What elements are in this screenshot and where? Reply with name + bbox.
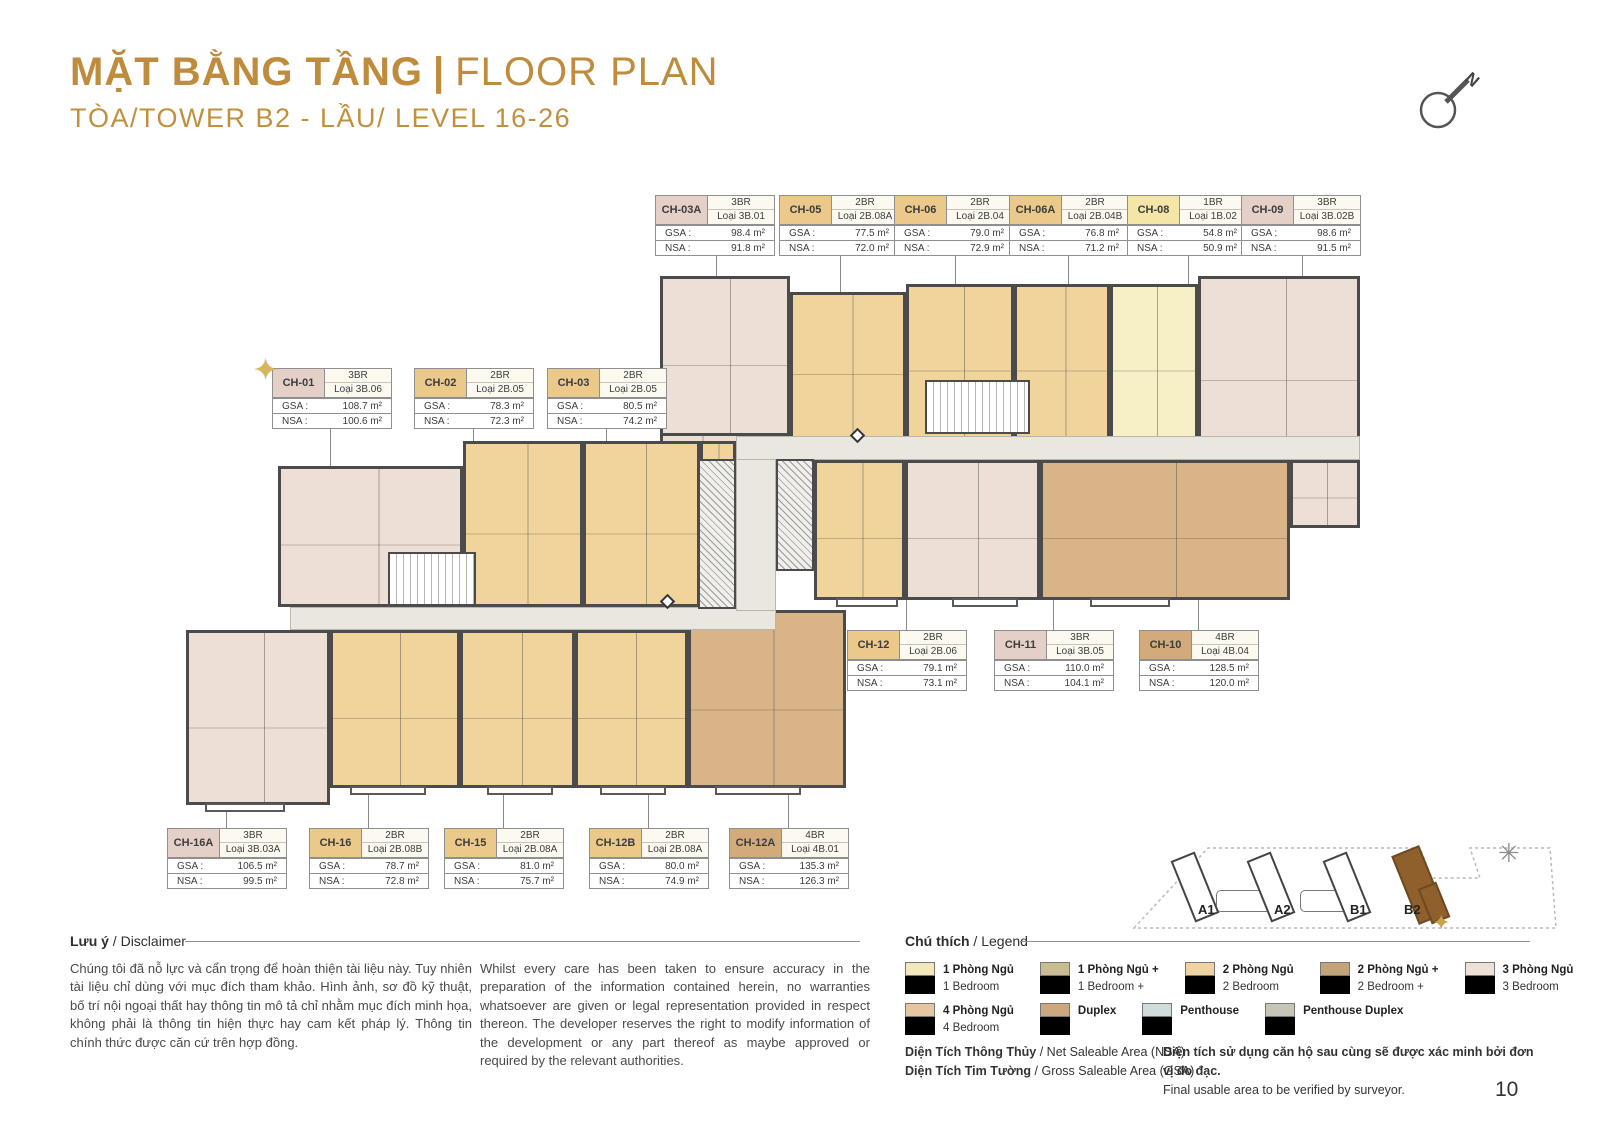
unit-type-cell: 4BRLoại 4B.04 [1192,631,1258,659]
unit-gsa-row: GSA :77.5 m² [780,225,898,240]
tower-level-subtitle: TÒA/TOWER B2 - LẦU/ LEVEL 16-26 [70,103,571,134]
gsa-label: GSA : [1251,228,1277,239]
unit-bedroom-type: 2BR [642,829,708,843]
balcony [600,786,666,795]
unit-info-box-ch-03a: CH-03A3BRLoại 3B.01GSA :98.4 m²NSA :91.8… [655,195,775,256]
corridor-vertical-link [736,459,776,611]
unit-bedroom-type: 3BR [708,196,774,210]
legend-labels: Duplex [1078,1003,1116,1036]
unit-box-top: CH-152BRLoại 2B.08A [445,829,563,858]
nsa-label: NSA : [1004,678,1030,689]
unit-box-top: CH-162BRLoại 2B.08B [310,829,428,858]
unit-id: CH-12B [590,829,642,857]
unit-info-box-ch-01: ✦CH-013BRLoại 3B.06GSA :108.7 m²NSA :100… [272,368,392,429]
unit-bedroom-type: 2BR [1062,196,1128,210]
unit-bedroom-type: 2BR [362,829,428,843]
unit-nsa-row: NSA :50.9 m² [1128,240,1246,255]
plan-unit-ch-09-tail [1290,460,1360,528]
nsa-value: 72.0 m² [855,243,889,254]
gsa-label: GSA : [789,228,815,239]
unit-box-top: CH-113BRLoại 3B.05 [995,631,1113,660]
leader-line [906,600,907,630]
unit-type-cell: 3BRLoại 3B.02B [1294,196,1360,224]
unit-box-top: CH-06A2BRLoại 2B.04B [1010,196,1128,225]
gsa-value: 76.8 m² [1085,228,1119,239]
unit-id: CH-16 [310,829,362,857]
unit-gsa-row: GSA :54.8 m² [1128,225,1246,240]
legend-label-en [1180,1020,1239,1037]
unit-bedroom-type: 2BR [900,631,966,645]
nsa-label: NSA : [599,876,625,887]
nsa-label: NSA : [1137,243,1163,254]
disclaimer-text-en: Whilst every care has been taken to ensu… [480,960,870,1071]
unit-gsa-row: GSA :78.3 m² [415,398,533,413]
unit-type-cell: 3BRLoại 3B.06 [325,369,391,397]
nsa-value: 50.9 m² [1203,243,1237,254]
legend-labels: Penthouse Duplex [1303,1003,1403,1036]
leader-line [1068,253,1069,284]
plan-unit-ch-03a [660,276,790,436]
legend-heading-vi: Chú thích [905,933,970,949]
unit-nsa-row: NSA :104.1 m² [995,675,1113,690]
gsa-value: 79.0 m² [970,228,1004,239]
nsa-value: 100.6 m² [343,416,382,427]
stair-core-left [388,552,476,606]
balcony [487,786,553,795]
legend-labels: 3 Phòng Ngủ3 Bedroom [1503,962,1574,995]
elevator-bank-left [698,459,736,609]
unit-gsa-row: GSA :79.0 m² [895,225,1013,240]
nsa-value: 72.8 m² [385,876,419,887]
unit-gsa-row: GSA :98.6 m² [1242,225,1360,240]
balcony [350,786,426,795]
nsa-value: 72.9 m² [970,243,1004,254]
unit-nsa-row: NSA :72.0 m² [780,240,898,255]
leader-line [1188,253,1189,284]
nsa-label: NSA : [739,876,765,887]
unit-info-box-ch-08: CH-081BRLoại 1B.02GSA :54.8 m²NSA :50.9 … [1127,195,1247,256]
nsa-value: 104.1 m² [1065,678,1104,689]
gsa-value: 98.4 m² [731,228,765,239]
unit-gsa-row: GSA :78.7 m² [310,858,428,873]
plan-unit-ch-09 [1198,276,1360,462]
legend-item: 2 Phòng Ngủ2 Bedroom [1185,962,1294,995]
unit-id: CH-06A [1010,196,1062,224]
unit-info-box-ch-16: CH-162BRLoại 2B.08BGSA :78.7 m²NSA :72.8… [309,828,429,889]
page-title-vi: MẶT BẰNG TẦNG [70,50,423,94]
gsa-label: GSA : [599,861,625,872]
unit-gsa-row: GSA :110.0 m² [995,660,1113,675]
unit-info-box-ch-12: CH-122BRLoại 2B.06GSA :79.1 m²NSA :73.1 … [847,630,967,691]
leader-line [1302,253,1303,276]
plan-unit-ch-16a [186,630,330,805]
legend-labels: 1 Phòng Ngủ +1 Bedroom + [1078,962,1159,995]
unit-type-cell: 3BRLoại 3B.03A [220,829,286,857]
balcony [715,786,801,795]
unit-layout-code: Loại 2B.08A [832,210,898,224]
plan-unit-ch-12a [688,610,846,788]
nsa-label: NSA : [904,243,930,254]
unit-id: CH-02 [415,369,467,397]
legend-labels: 2 Phòng Ngủ2 Bedroom [1223,962,1294,995]
tower-label-a1: A1 [1198,902,1215,917]
unit-nsa-row: NSA :72.8 m² [310,873,428,888]
legend-item: 2 Phòng Ngủ +2 Bedroom + [1320,962,1439,995]
nsa-label: NSA : [1019,243,1045,254]
legend-row-2: 4 Phòng Ngủ4 BedroomDuplex Penthouse Pen… [905,1003,1403,1036]
unit-nsa-row: NSA :71.2 m² [1010,240,1128,255]
unit-id: CH-16A [168,829,220,857]
unit-gsa-row: GSA :80.0 m² [590,858,708,873]
disclaimer-heading-vi: Lưu ý [70,933,109,949]
balcony [205,803,285,812]
legend-labels: 4 Phòng Ngủ4 Bedroom [943,1003,1014,1036]
unit-info-box-ch-15: CH-152BRLoại 2B.08AGSA :81.0 m²NSA :75.7… [444,828,564,889]
leader-line [955,253,956,284]
legend-item: Penthouse Duplex [1265,1003,1403,1036]
nsa-value: 75.7 m² [520,876,554,887]
svg-text:N: N [1461,68,1483,90]
unit-info-box-ch-12a: CH-12A4BRLoại 4B.01GSA :135.3 m²NSA :126… [729,828,849,889]
legend-item: 1 Phòng Ngủ +1 Bedroom + [1040,962,1159,995]
plan-unit-ch-08 [1110,284,1198,439]
gsa-value: 81.0 m² [520,861,554,872]
divider-line [185,941,860,942]
unit-layout-code: Loại 2B.04 [947,210,1013,224]
legend-swatch-icon [1320,962,1350,994]
unit-bedroom-type: 2BR [600,369,666,383]
unit-type-cell: 4BRLoại 4B.01 [782,829,848,857]
unit-bedroom-type: 4BR [782,829,848,843]
gsa-value: 135.3 m² [800,861,839,872]
gsa-label: GSA : [319,861,345,872]
corridor-right-wing [736,436,1360,460]
unit-layout-code: Loại 3B.06 [325,383,391,397]
unit-type-cell: 2BRLoại 2B.08A [497,829,563,857]
legend-label-en: 4 Bedroom [943,1020,1014,1037]
gsa-value: 78.3 m² [490,401,524,412]
unit-nsa-row: NSA :91.5 m² [1242,240,1360,255]
unit-layout-code: Loại 3B.05 [1047,645,1113,659]
legend-swatch-icon [1040,1003,1070,1035]
unit-info-box-ch-06: CH-062BRLoại 2B.04GSA :79.0 m²NSA :72.9 … [894,195,1014,256]
plan-unit-ch-03 [583,441,700,607]
gsa-value: 98.6 m² [1317,228,1351,239]
tower-label-a2: A2 [1274,902,1291,917]
legend-swatch-icon [1142,1003,1172,1035]
unit-layout-code: Loại 3B.02B [1294,210,1360,224]
unit-bedroom-type: 3BR [325,369,391,383]
unit-layout-code: Loại 4B.04 [1192,645,1258,659]
leader-line [1198,600,1199,630]
surveyor-note: Diện tích sử dụng căn hộ sau cùng sẽ đượ… [1163,1043,1543,1099]
nsa-value: 74.2 m² [623,416,657,427]
unit-layout-code: Loại 1B.02 [1180,210,1246,224]
nsa-value: 74.9 m² [665,876,699,887]
legend-label-en: 2 Bedroom + [1358,979,1439,996]
nsa-label: NSA : [857,678,883,689]
unit-id: CH-10 [1140,631,1192,659]
unit-info-box-ch-06a: CH-06A2BRLoại 2B.04BGSA :76.8 m²NSA :71.… [1009,195,1129,256]
unit-type-cell: 2BRLoại 2B.05 [600,369,666,397]
unit-gsa-row: GSA :79.1 m² [848,660,966,675]
legend-label-vi: 4 Phòng Ngủ [943,1003,1014,1020]
legend-label-en: 2 Bedroom [1223,979,1294,996]
unit-bedroom-type: 1BR [1180,196,1246,210]
legend-label-en: 1 Bedroom [943,979,1014,996]
unit-layout-code: Loại 2B.06 [900,645,966,659]
nsa-label: NSA : [424,416,450,427]
legend-swatch-icon [1185,962,1215,994]
legend-label-vi: 1 Phòng Ngủ [943,962,1014,979]
gsa-label: GSA : [177,861,203,872]
gsa-label: GSA : [1149,663,1175,674]
unit-type-cell: 3BRLoại 3B.05 [1047,631,1113,659]
plan-unit-ch-15 [460,630,575,788]
unit-box-top: CH-081BRLoại 1B.02 [1128,196,1246,225]
unit-bedroom-type: 2BR [467,369,533,383]
nsa-label: NSA : [282,416,308,427]
legend-item: 4 Phòng Ngủ4 Bedroom [905,1003,1014,1036]
surveyor-note-en: Final usable area to be verified by surv… [1163,1081,1543,1100]
nsa-value: 71.2 m² [1085,243,1119,254]
unit-box-top: CH-16A3BRLoại 3B.03A [168,829,286,858]
unit-box-top: CH-062BRLoại 2B.04 [895,196,1013,225]
legend-swatch-icon [1265,1003,1295,1035]
nsa-value: 120.0 m² [1210,678,1249,689]
title-divider: | [433,50,445,94]
legend-item: 3 Phòng Ngủ3 Bedroom [1465,962,1574,995]
unit-info-box-ch-16a: CH-16A3BRLoại 3B.03AGSA :106.5 m²NSA :99… [167,828,287,889]
unit-info-box-ch-02: CH-022BRLoại 2B.05GSA :78.3 m²NSA :72.3 … [414,368,534,429]
plan-unit-ch-12b [575,630,688,788]
gsa-label: GSA : [739,861,765,872]
unit-layout-code: Loại 2B.05 [600,383,666,397]
unit-nsa-row: NSA :120.0 m² [1140,675,1258,690]
unit-nsa-row: NSA :75.7 m² [445,873,563,888]
legend-labels: 2 Phòng Ngủ +2 Bedroom + [1358,962,1439,995]
gsa-label-vi: Diện Tích Tim Tường [905,1064,1031,1078]
unit-box-top: CH-122BRLoại 2B.06 [848,631,966,660]
unit-box-top: CH-093BRLoại 3B.02B [1242,196,1360,225]
unit-id: CH-03 [548,369,600,397]
legend-label-en [1303,1020,1403,1037]
elevator-bank-right [776,459,814,571]
unit-layout-code: Loại 2B.08A [497,843,563,857]
nsa-label: NSA : [557,416,583,427]
nsa-label: NSA : [319,876,345,887]
legend-item: Duplex [1040,1003,1116,1036]
unit-nsa-row: NSA :73.1 m² [848,675,966,690]
tower-label-b2: B2 [1404,902,1421,917]
page-number: 10 [1495,1078,1518,1102]
gsa-value: 108.7 m² [343,401,382,412]
unit-nsa-row: NSA :91.8 m² [656,240,774,255]
unit-nsa-row: NSA :72.3 m² [415,413,533,428]
legend-labels: Penthouse [1180,1003,1239,1036]
unit-type-cell: 2BRLoại 2B.08B [362,829,428,857]
unit-id: CH-06 [895,196,947,224]
unit-bedroom-type: 2BR [947,196,1013,210]
unit-box-top: CH-03A3BRLoại 3B.01 [656,196,774,225]
legend-swatch-icon [1465,962,1495,994]
unit-nsa-row: NSA :99.5 m² [168,873,286,888]
unit-box-top: CH-052BRLoại 2B.08A [780,196,898,225]
unit-layout-code: Loại 3B.01 [708,210,774,224]
gsa-label: GSA : [282,401,308,412]
gsa-label: GSA : [454,861,480,872]
nsa-label: NSA : [454,876,480,887]
balcony [952,598,1018,607]
legend-heading: Chú thích / Legend [905,933,1028,949]
unit-info-box-ch-10: CH-104BRLoại 4B.04GSA :128.5 m²NSA :120.… [1139,630,1259,691]
unit-box-top: CH-032BRLoại 2B.05 [548,369,666,398]
plan-unit-ch-11 [905,460,1040,600]
unit-gsa-row: GSA :80.5 m² [548,398,666,413]
balcony [836,598,898,607]
gsa-value: 128.5 m² [1210,663,1249,674]
unit-id: CH-12A [730,829,782,857]
nsa-label: NSA : [1251,243,1277,254]
legend-item: Penthouse [1142,1003,1239,1036]
unit-type-cell: 1BRLoại 1B.02 [1180,196,1246,224]
unit-gsa-row: GSA :108.7 m² [273,398,391,413]
legend-label-en [1078,1020,1116,1037]
gsa-value: 79.1 m² [923,663,957,674]
nsa-value: 73.1 m² [923,678,957,689]
gsa-value: 106.5 m² [238,861,277,872]
nsa-label: NSA : [1149,678,1175,689]
unit-layout-code: Loại 3B.03A [220,843,286,857]
gsa-value: 80.0 m² [665,861,699,872]
legend-label-en: 3 Bedroom [1503,979,1574,996]
legend-labels: 1 Phòng Ngủ1 Bedroom [943,962,1014,995]
unit-gsa-row: GSA :76.8 m² [1010,225,1128,240]
gsa-label: GSA : [1004,663,1030,674]
unit-bedroom-type: 2BR [832,196,898,210]
legend-swatch-icon [1040,962,1070,994]
unit-nsa-row: NSA :74.2 m² [548,413,666,428]
nsa-value: 91.8 m² [731,243,765,254]
unit-info-box-ch-09: CH-093BRLoại 3B.02BGSA :98.6 m²NSA :91.5… [1241,195,1361,256]
unit-id: CH-05 [780,196,832,224]
unit-type-cell: 2BRLoại 2B.06 [900,631,966,659]
unit-id: CH-08 [1128,196,1180,224]
plan-unit-ch-16 [330,630,460,788]
unit-type-cell: 2BRLoại 2B.08A [832,196,898,224]
gsa-value: 78.7 m² [385,861,419,872]
gsa-label: GSA : [665,228,691,239]
legend-label-vi: Duplex [1078,1003,1116,1020]
legend-swatch-icon [905,1003,935,1035]
unit-bedroom-type: 3BR [1047,631,1113,645]
unit-gsa-row: GSA :128.5 m² [1140,660,1258,675]
gsa-label: GSA : [557,401,583,412]
gsa-label: GSA : [1137,228,1163,239]
page-title: MẶT BẰNG TẦNG|FLOOR PLAN [70,50,719,95]
nsa-label: NSA : [789,243,815,254]
starburst-icon: ✳ [1498,838,1520,869]
unit-layout-code: Loại 4B.01 [782,843,848,857]
unit-box-top: CH-12B2BRLoại 2B.08A [590,829,708,858]
unit-layout-code: Loại 2B.08B [362,843,428,857]
unit-nsa-row: NSA :74.9 m² [590,873,708,888]
legend-label-vi: 2 Phòng Ngủ [1223,962,1294,979]
unit-box-top: CH-022BRLoại 2B.05 [415,369,533,398]
unit-type-cell: 2BRLoại 2B.04 [947,196,1013,224]
unit-id: CH-11 [995,631,1047,659]
legend-item: 1 Phòng Ngủ1 Bedroom [905,962,1014,995]
nsa-value: 126.3 m² [800,876,839,887]
gsa-value: 54.8 m² [1203,228,1237,239]
unit-gsa-row: GSA :106.5 m² [168,858,286,873]
surveyor-note-vi: Diện tích sử dụng căn hộ sau cùng sẽ đượ… [1163,1045,1534,1078]
gsa-label: GSA : [1019,228,1045,239]
nsa-label: NSA : [177,876,203,887]
unit-id: CH-01 [273,369,325,397]
nsa-value: 99.5 m² [243,876,277,887]
unit-info-box-ch-12b: CH-12B2BRLoại 2B.08AGSA :80.0 m²NSA :74.… [589,828,709,889]
unit-info-box-ch-05: CH-052BRLoại 2B.08AGSA :77.5 m²NSA :72.0… [779,195,899,256]
disclaimer-text-vi: Chúng tôi đã nỗ lực và cẩn trọng để hoàn… [70,960,472,1052]
unit-info-box-ch-03: CH-032BRLoại 2B.05GSA :80.5 m²NSA :74.2 … [547,368,667,429]
unit-id: CH-03A [656,196,708,224]
unit-nsa-row: NSA :126.3 m² [730,873,848,888]
unit-bedroom-type: 2BR [497,829,563,843]
plan-unit-ch-05 [790,292,906,439]
legend-label-en: 1 Bedroom + [1078,979,1159,996]
unit-box-top: CH-013BRLoại 3B.06 [273,369,391,398]
corridor-left-wing [290,607,776,630]
legend-row-1: 1 Phòng Ngủ1 Bedroom1 Phòng Ngủ +1 Bedro… [905,962,1573,995]
star-icon: ✦ [253,353,278,388]
unit-gsa-row: GSA :81.0 m² [445,858,563,873]
unit-id: CH-15 [445,829,497,857]
legend-label-vi: Penthouse Duplex [1303,1003,1403,1020]
legend-label-vi: 1 Phòng Ngủ + [1078,962,1159,979]
unit-gsa-row: GSA :135.3 m² [730,858,848,873]
legend-swatch-icon [905,962,935,994]
legend-label-vi: 2 Phòng Ngủ + [1358,962,1439,979]
star-icon: ✦ [1432,910,1450,936]
nsa-label-vi: Diện Tích Thông Thủy [905,1045,1036,1059]
balcony [1090,598,1170,607]
unit-gsa-row: GSA :98.4 m² [656,225,774,240]
leader-line [840,253,841,292]
leader-line [716,253,717,276]
unit-nsa-row: NSA :100.6 m² [273,413,391,428]
disclaimer-heading: Lưu ý / Disclaimer [70,933,186,949]
leader-line [330,426,331,466]
nsa-label: NSA : [665,243,691,254]
tower-label-b1: B1 [1350,902,1367,917]
plan-unit-ch-10 [1040,460,1290,600]
gsa-label: GSA : [424,401,450,412]
gsa-value: 77.5 m² [855,228,889,239]
unit-info-box-ch-11: CH-113BRLoại 3B.05GSA :110.0 m²NSA :104.… [994,630,1114,691]
plan-unit-ch-02 [463,441,583,607]
north-compass-icon: N [1408,62,1488,142]
unit-layout-code: Loại 2B.04B [1062,210,1128,224]
legend-label-vi: 3 Phòng Ngủ [1503,962,1574,979]
unit-nsa-row: NSA :72.9 m² [895,240,1013,255]
gsa-value: 80.5 m² [623,401,657,412]
divider-line [1020,941,1530,942]
gsa-label: GSA : [904,228,930,239]
unit-layout-code: Loại 2B.05 [467,383,533,397]
unit-box-top: CH-104BRLoại 4B.04 [1140,631,1258,660]
area-definition-note: Diện Tích Thông Thủy / Net Saleable Area… [905,1043,1194,1081]
